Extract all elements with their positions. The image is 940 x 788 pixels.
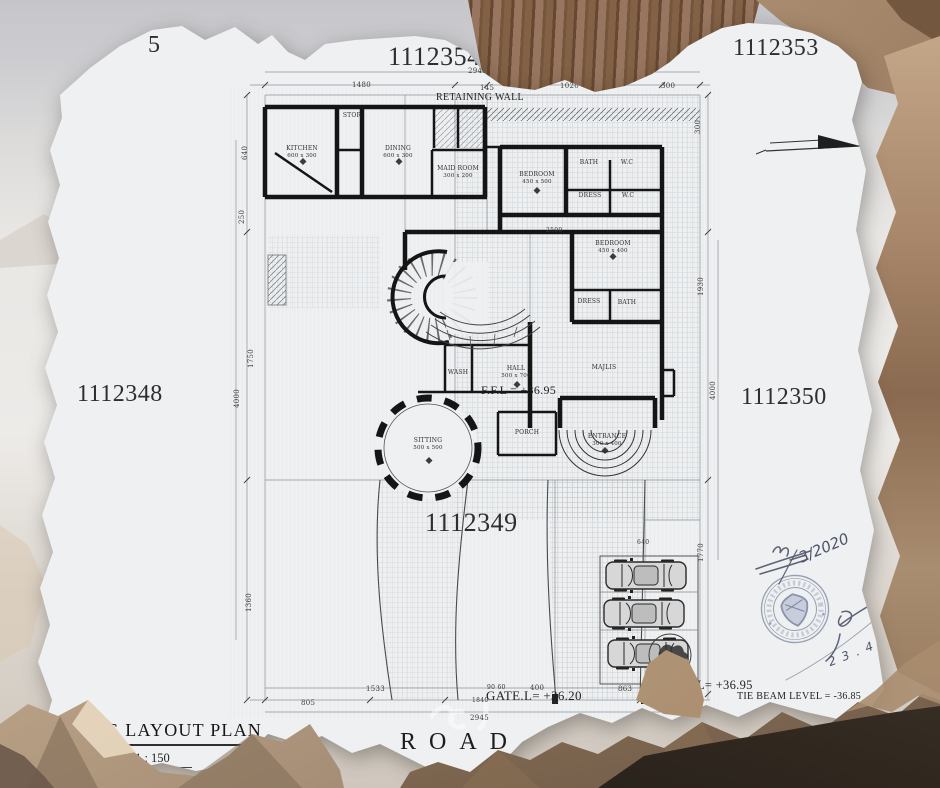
plot-number-top-left-partial: 5: [148, 32, 161, 59]
dim-top-2945: 2945: [468, 67, 487, 75]
room-label-maid: MAID ROOM300 x 200: [437, 166, 479, 179]
room-label-stor: STOR: [343, 113, 361, 120]
dim-left-250: 250: [238, 210, 246, 224]
municipal-seal-stamp: [756, 570, 834, 648]
room-label-entrance: ENTRANCE300 x 400: [588, 434, 626, 447]
room-label-hall: HALL500 x 700: [501, 366, 530, 379]
room-label-wc2: W.C: [622, 193, 634, 200]
room-label-bedroom2: BEDROOM450 x 400: [595, 241, 631, 254]
room-label-majlis: MAJLIS: [592, 365, 617, 372]
plot-number-south: 1112349: [425, 508, 518, 538]
tie-beam-level-label: TIE BEAM LEVEL = -36.85: [737, 691, 861, 702]
room-label-wc1: W.C: [621, 160, 633, 167]
dim-top-1480: 1480: [352, 81, 371, 89]
retaining-wall-label: RETAINING WALL: [436, 92, 524, 103]
ffl-label: F.F.L = +36.95: [481, 383, 556, 398]
room-label-kitchen: KITCHEN600 x 300: [286, 146, 318, 159]
dim-right-1770: 1770: [697, 543, 705, 562]
plot-number-east: 1112350: [741, 384, 827, 411]
car-top-view-icon: [604, 596, 684, 631]
dim-left-640: 640: [241, 146, 249, 160]
dim-inner-2500: 2500: [546, 227, 562, 234]
dim-bottom-863: 863: [618, 685, 632, 693]
dim-inner-640: 640: [637, 539, 649, 546]
dim-right-1930: 1930: [697, 277, 705, 296]
torn-paper-sheet: 5 1112354 1112353 1112348 1112350 111234…: [0, 0, 940, 788]
room-label-dress2: DRESS: [578, 299, 601, 306]
room-label-bedroom1: BEDROOM450 x 500: [519, 172, 555, 185]
torn-site-plan-photo: 5 1112354 1112353 1112348 1112350 111234…: [0, 0, 940, 788]
room-label-dining: DINING600 x 300: [383, 146, 412, 159]
room-label-wash: WASH: [448, 370, 468, 377]
shield-icon: [780, 592, 811, 628]
dim-top-1020: 1020: [560, 82, 579, 90]
dim-bottom-90-60: 90 60: [487, 684, 506, 691]
room-label-sitting: SITTING500 x 500: [413, 438, 442, 451]
north-arrow-icon: [756, 135, 860, 154]
dim-top-300: 300: [661, 82, 675, 90]
room-label-bath2: BATH: [618, 300, 636, 307]
dim-bottom-400: 400: [530, 684, 544, 692]
plot-number-top-center: 1112354: [388, 42, 481, 72]
dim-left-1360: 1360: [245, 593, 253, 612]
room-label-bath1: BATH: [580, 160, 598, 167]
plot-number-top-right: 1112353: [733, 35, 819, 62]
car-top-view-icon: [606, 558, 686, 593]
dim-bottom-2945: 2945: [470, 714, 489, 722]
plot-number-west: 1112348: [77, 381, 163, 408]
dim-bottom-1533: 1533: [366, 685, 385, 693]
room-label-porch: PORCH: [515, 430, 539, 437]
dim-bottom-805: 805: [301, 699, 315, 707]
dim-left-1750: 1750: [247, 349, 255, 368]
room-label-dress1: DRESS: [579, 193, 602, 200]
dim-right-4000: 4000: [709, 381, 717, 400]
dim-left-4000: 4000: [233, 389, 241, 408]
dim-bottom-1840: 1840: [472, 697, 488, 704]
dim-top-145: 145: [480, 84, 494, 92]
dim-right-300: 300: [694, 120, 702, 134]
